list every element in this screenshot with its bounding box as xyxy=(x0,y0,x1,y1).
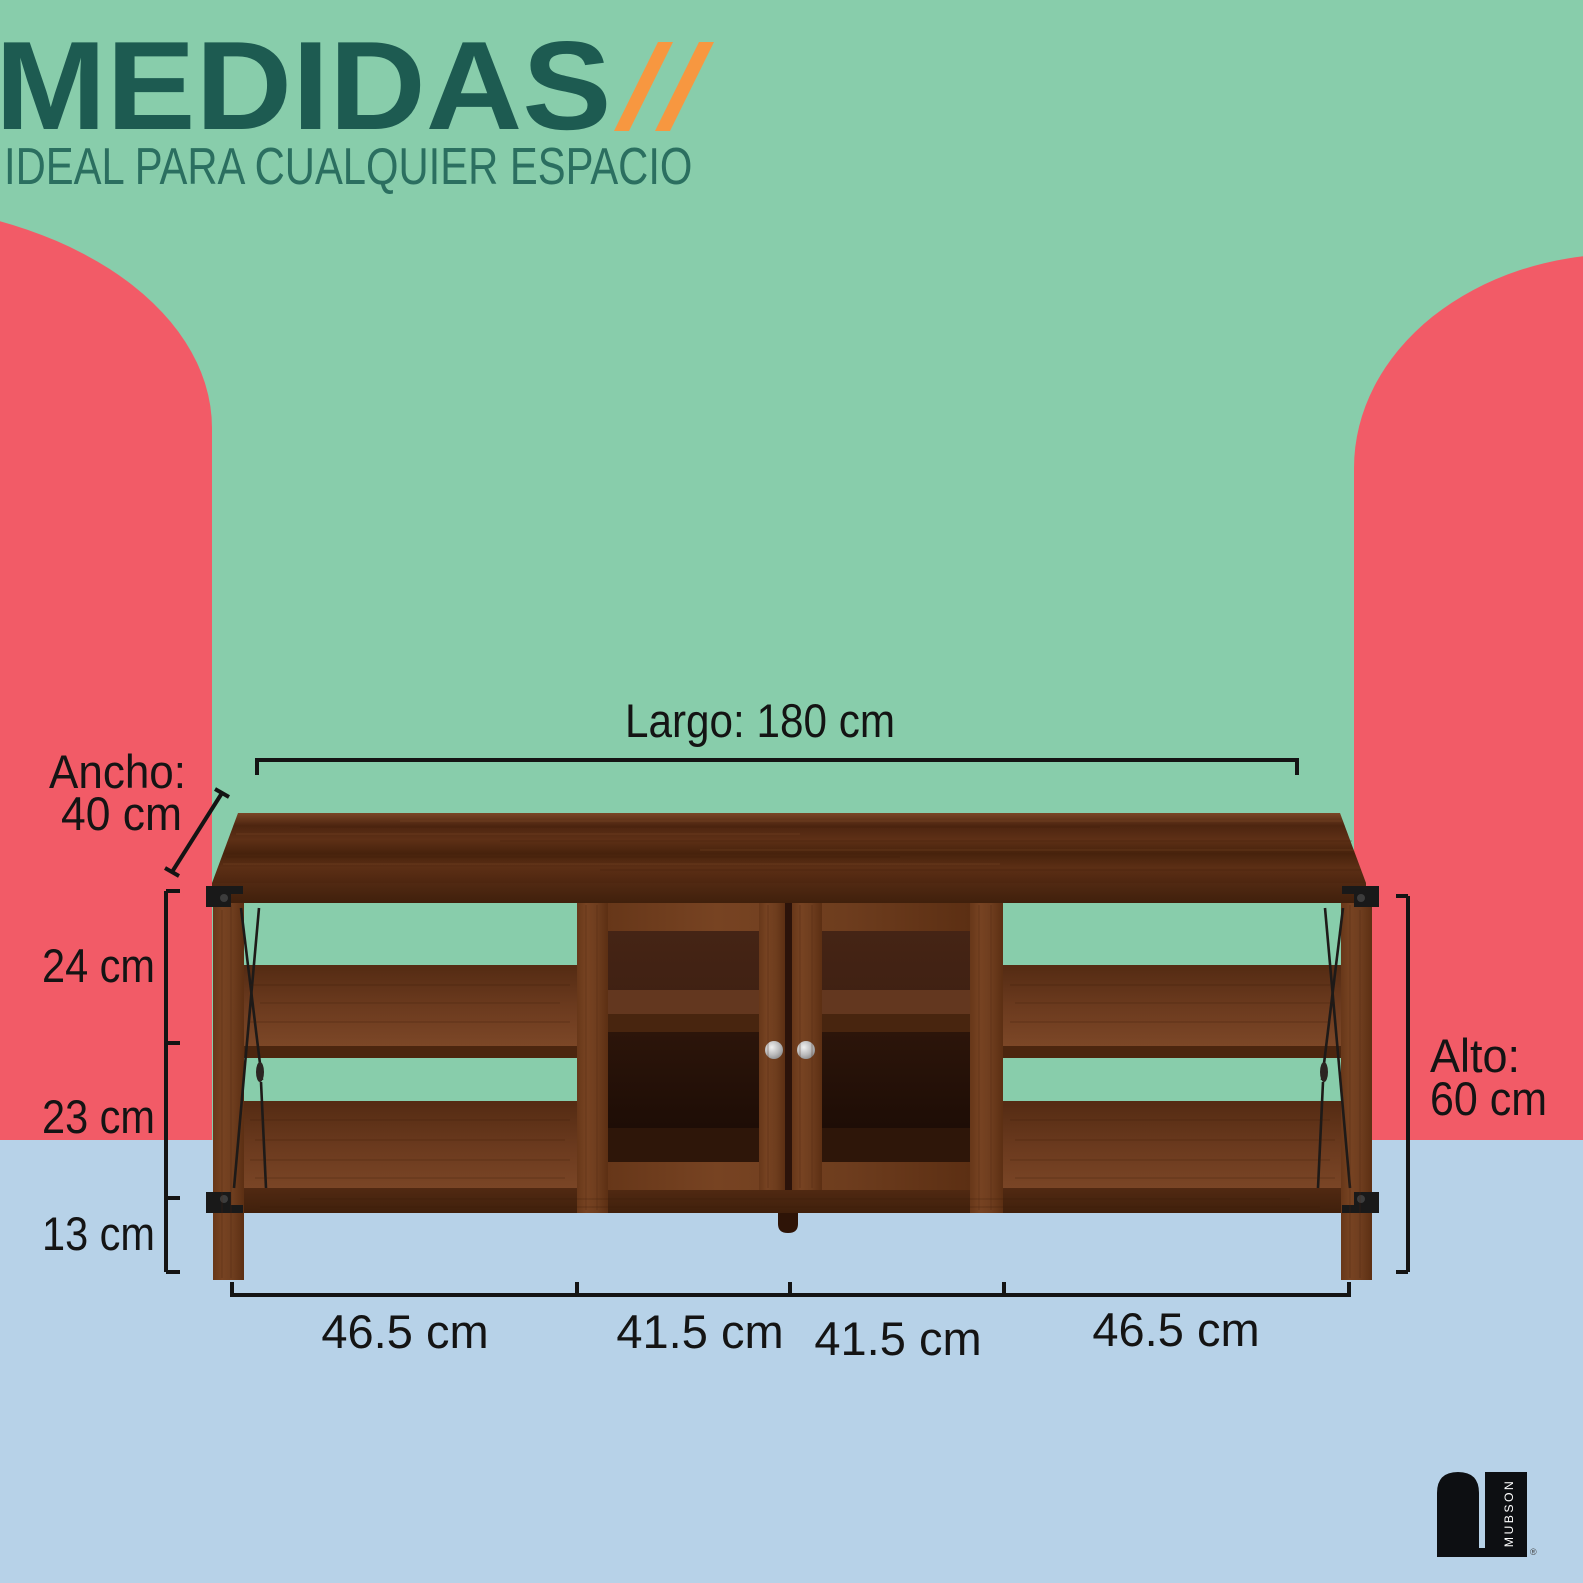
svg-text:MUBSON: MUBSON xyxy=(1502,1479,1516,1547)
svg-text:46.5 cm: 46.5 cm xyxy=(1092,1303,1259,1356)
svg-text:60 cm: 60 cm xyxy=(1430,1072,1547,1125)
svg-text:24 cm: 24 cm xyxy=(42,939,155,992)
svg-text:23 cm: 23 cm xyxy=(42,1090,155,1143)
svg-text:40 cm: 40 cm xyxy=(61,787,182,840)
svg-text:®: ® xyxy=(1530,1547,1537,1557)
svg-text:Largo: 180 cm: Largo: 180 cm xyxy=(625,694,895,747)
svg-text:41.5 cm: 41.5 cm xyxy=(616,1305,783,1358)
svg-text:46.5 cm: 46.5 cm xyxy=(321,1305,488,1358)
svg-text:13 cm: 13 cm xyxy=(42,1207,155,1260)
svg-text:41.5 cm: 41.5 cm xyxy=(814,1312,981,1365)
